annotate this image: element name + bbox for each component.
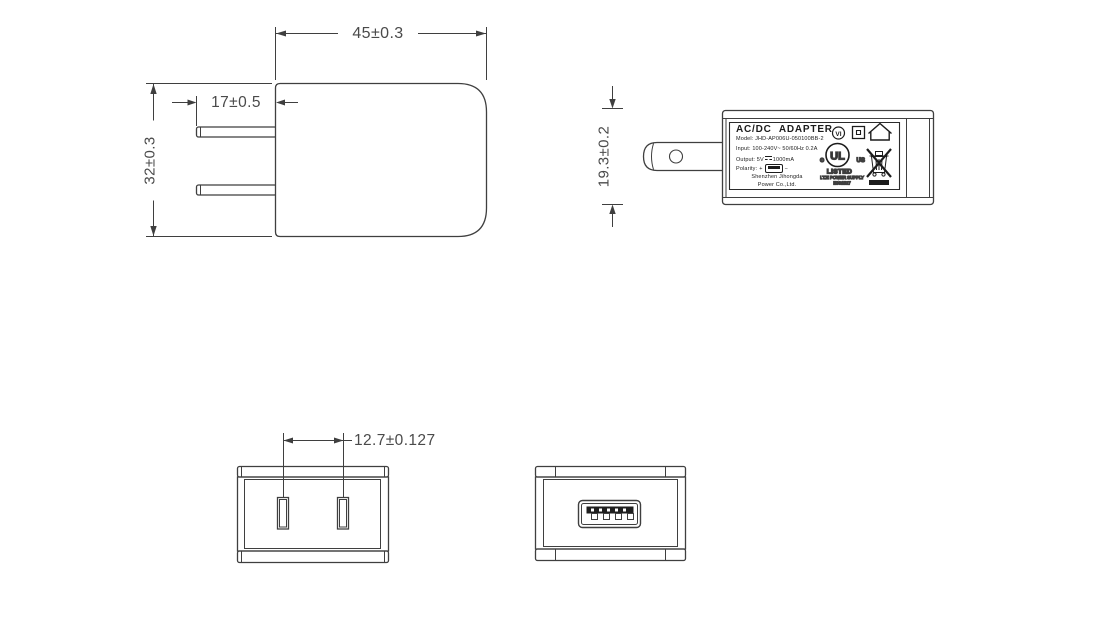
prong-hole [670,150,683,163]
dim-side-height-text: 19.3±0.2 [596,112,613,202]
usb-face-view [536,467,686,561]
dim-front-height-text: 32±0.3 [142,121,159,201]
label-model: Model: JHD-AP006U-050100BB-2 [736,136,824,142]
label-input: Input: 100-240V~ 50/60Hz 0.2A [736,146,818,152]
adapter-rating-label: AC/DC ADAPTER Model: JHD-AP006U-050100BB… [729,122,900,190]
plug-prong-side [644,143,723,171]
usb-face-bottom-cap [536,549,686,561]
plug-prong-upper [197,127,277,137]
label-company-1: Shenzhen Jihongda [733,174,821,180]
dc-symbol-icon [765,156,772,161]
usb-face-top-cap [536,467,686,478]
label-company-2: Power Co.,Ltd. [733,182,821,188]
adapter-body-front [276,84,487,237]
plug-prong-lower [197,185,277,195]
label-title: AC/DC ADAPTER [736,124,833,135]
plug-face-body [238,477,389,551]
plug-face-bottom-cap [238,551,389,563]
plug-face-top-cap [238,467,389,478]
label-output: Output: 5V1000mA [736,156,794,163]
dim-prong-length-text: 17±0.5 [196,94,276,112]
label-polarity: Polarity: + − [736,164,788,173]
front-view [146,27,487,237]
usb-connector-icon [765,164,783,173]
dim-pin-pitch-text: 12.7±0.127 [354,432,435,450]
drawing-linework: VI UL c US LISTED I.T.E POWER SUPPLY E36… [0,0,1100,621]
technical-drawing-canvas: VI UL c US LISTED I.T.E POWER SUPPLY E36… [0,0,1100,621]
plug-face-view [238,433,389,563]
dim-front-width-text: 45±0.3 [338,25,418,43]
